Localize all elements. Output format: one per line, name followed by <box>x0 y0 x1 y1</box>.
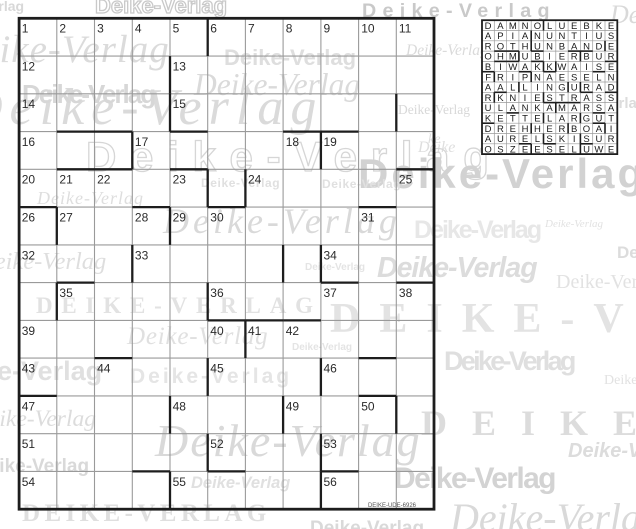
svg-text:30: 30 <box>210 211 224 225</box>
svg-text:Z: Z <box>510 144 516 155</box>
svg-text:Deike-Verl: Deike-Verl <box>604 373 636 388</box>
svg-text:Deik: Deik <box>617 243 636 262</box>
svg-text:33: 33 <box>135 248 149 262</box>
svg-text:56: 56 <box>324 475 338 489</box>
svg-text:Deike-Verlag: Deike-Verlag <box>292 342 352 353</box>
svg-text:39: 39 <box>22 324 36 338</box>
svg-text:38: 38 <box>399 286 413 300</box>
svg-text:4: 4 <box>135 22 142 36</box>
svg-text:7: 7 <box>248 22 255 36</box>
svg-text:24: 24 <box>248 173 262 187</box>
svg-text:20: 20 <box>22 173 36 187</box>
svg-text:42: 42 <box>286 324 300 338</box>
svg-text:E: E <box>522 144 528 155</box>
svg-text:22: 22 <box>97 173 111 187</box>
svg-text:Deike-Verlag: Deike-Verlag <box>377 252 537 284</box>
svg-text:43: 43 <box>22 362 36 376</box>
svg-text:10: 10 <box>361 22 375 36</box>
svg-text:16: 16 <box>22 135 36 149</box>
svg-text:Deike-Verlag: Deike-Verlag <box>0 406 96 432</box>
svg-text:L: L <box>572 144 577 155</box>
svg-text:DEIKE-VERLAG: DEIKE-VERLAG <box>36 293 322 318</box>
svg-text:44: 44 <box>97 362 111 376</box>
svg-text:2: 2 <box>59 22 66 36</box>
svg-text:E: E <box>608 144 614 155</box>
svg-text:S: S <box>497 144 503 155</box>
svg-text:29: 29 <box>173 211 187 225</box>
svg-text:32: 32 <box>22 248 36 262</box>
svg-text:12: 12 <box>22 60 36 74</box>
svg-text:34: 34 <box>324 248 338 262</box>
svg-text:53: 53 <box>324 437 338 451</box>
svg-text:Deike-Verl: Deike-Verl <box>568 440 636 462</box>
svg-text:19: 19 <box>324 135 338 149</box>
svg-text:51: 51 <box>22 437 36 451</box>
svg-text:E: E <box>534 144 540 155</box>
svg-text:6: 6 <box>210 22 217 36</box>
svg-text:25: 25 <box>399 173 413 187</box>
svg-text:Deike-Verlag: Deike-Verlag <box>322 177 401 191</box>
svg-text:Deike-Verlag: Deike-Verlag <box>310 518 424 529</box>
svg-text:DEIKE-VERLAG: DEIKE-VERLAG <box>22 500 271 527</box>
svg-text:15: 15 <box>173 97 187 111</box>
svg-text:Deike-Verlag: Deike-Verlag <box>394 462 555 495</box>
svg-text:Deike-Verlag: Deike-Verlag <box>0 0 24 14</box>
svg-text:47: 47 <box>22 399 36 413</box>
svg-text:Deike-Verlag: Deike-Verlag <box>444 346 575 376</box>
svg-text:48: 48 <box>173 399 187 413</box>
svg-text:8: 8 <box>286 22 293 36</box>
svg-text:31: 31 <box>361 211 375 225</box>
svg-text:5: 5 <box>173 22 180 36</box>
svg-text:27: 27 <box>59 211 73 225</box>
svg-text:37: 37 <box>324 286 338 300</box>
svg-text:W: W <box>594 144 603 155</box>
svg-text:DEIKE-VERLAG: DEIKE-VERLAG <box>421 403 636 443</box>
svg-text:Deike-Verlag: Deike-Verlag <box>0 456 89 477</box>
svg-text:36: 36 <box>210 286 224 300</box>
svg-text:Deike-Verlag: Deike-Verlag <box>0 248 106 275</box>
svg-text:Deike-Verlag: Deike-Verlag <box>95 0 227 18</box>
svg-text:Deike-Verlag: Deike-Verlag <box>191 474 290 492</box>
svg-text:Deike-Verlag: Deike-Verlag <box>201 176 280 190</box>
svg-text:14: 14 <box>22 97 36 111</box>
svg-text:52: 52 <box>210 437 224 451</box>
svg-text:17: 17 <box>135 135 149 149</box>
svg-text:Deike-Verlag: Deike-Verlag <box>193 67 360 102</box>
svg-text:35: 35 <box>59 286 73 300</box>
svg-text:13: 13 <box>173 60 187 74</box>
svg-text:11: 11 <box>399 22 412 36</box>
svg-text:26: 26 <box>22 211 36 225</box>
svg-text:45: 45 <box>210 362 224 376</box>
svg-text:1: 1 <box>22 22 29 36</box>
svg-text:Deike-Verlag: Deike-Verlag <box>556 271 636 293</box>
svg-text:28: 28 <box>135 211 149 225</box>
svg-text:DEIKE-VERLAG: DEIKE-VERLAG <box>330 296 636 342</box>
svg-text:18: 18 <box>286 135 300 149</box>
svg-text:46: 46 <box>324 362 338 376</box>
svg-text:Deike-Verlag: Deike-Verlag <box>154 415 422 466</box>
svg-text:Deike-Verlag: Deike-Verlag <box>305 262 365 273</box>
svg-text:23: 23 <box>173 173 187 187</box>
svg-text:Deike-Verlag: Deike-Verlag <box>36 188 144 208</box>
svg-text:S: S <box>546 144 552 155</box>
svg-text:E: E <box>559 144 565 155</box>
svg-text:3: 3 <box>97 22 104 36</box>
svg-text:Deike-Verlag: Deike-Verlag <box>0 356 102 386</box>
svg-text:40: 40 <box>210 324 224 338</box>
svg-text:49: 49 <box>286 399 300 413</box>
svg-text:U: U <box>583 144 590 155</box>
svg-text:Deike-Verlag: Deike-Verlag <box>544 218 604 230</box>
svg-text:55: 55 <box>173 475 187 489</box>
svg-text:O: O <box>484 144 491 155</box>
svg-text:41: 41 <box>248 324 262 338</box>
svg-text:DEIKE-UDE-6926: DEIKE-UDE-6926 <box>368 503 417 509</box>
svg-text:54: 54 <box>22 475 36 489</box>
svg-text:9: 9 <box>324 22 331 36</box>
svg-text:Deike-Verlag: Deike-Verlag <box>449 495 636 529</box>
svg-text:21: 21 <box>59 173 73 187</box>
svg-text:50: 50 <box>361 399 375 413</box>
